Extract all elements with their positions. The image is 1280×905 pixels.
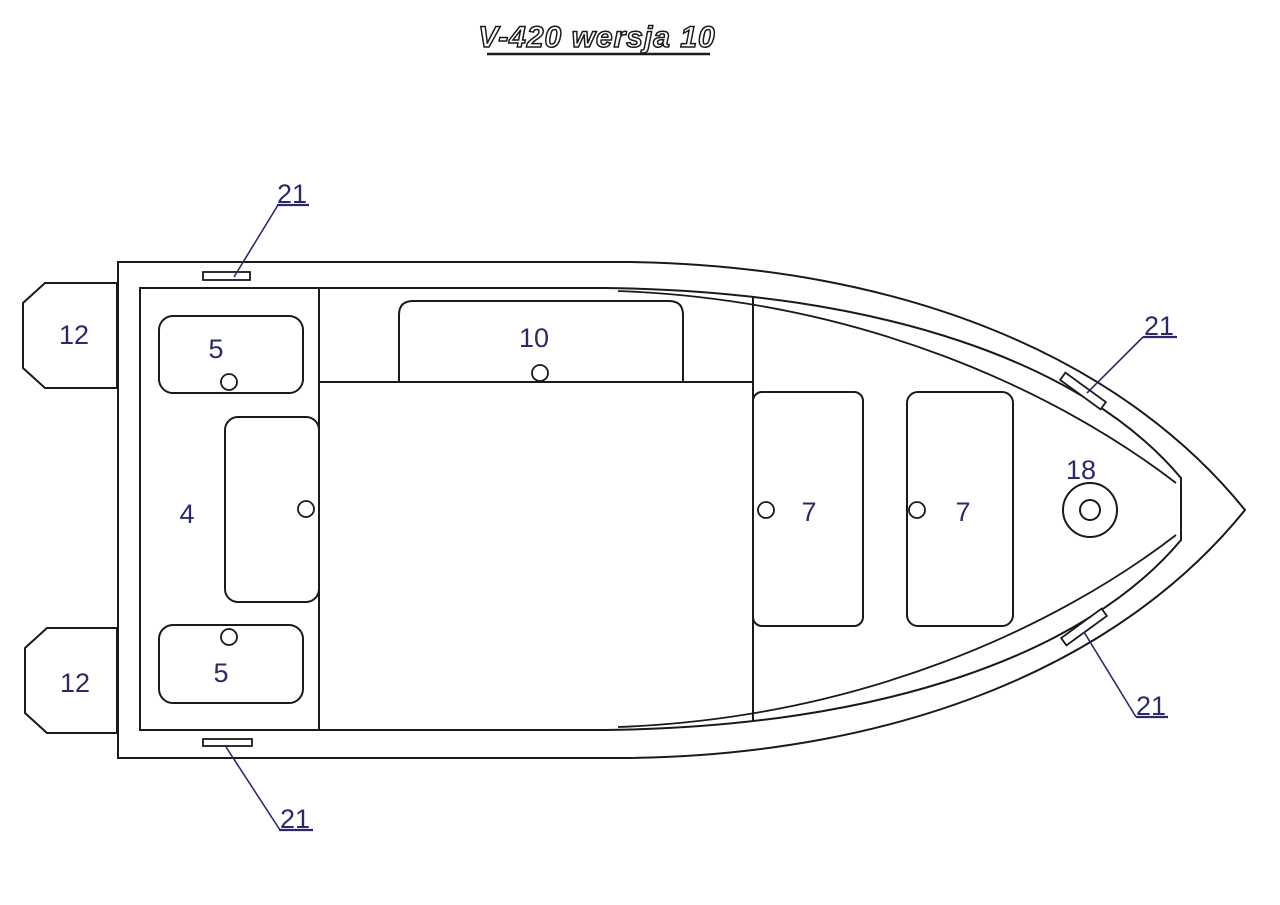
finger-hole-bench7-left [758,502,774,518]
label-10: 10 [519,323,549,353]
label-21-tl: 21 [277,179,307,209]
finger-hole-seat5-bottom [221,629,237,645]
finger-hole-console [298,501,314,517]
finger-hole-seat5-top [221,374,237,390]
finger-hole-bench10 [532,365,548,381]
label-21-br: 21 [1136,691,1166,721]
label-4: 4 [179,499,194,529]
bow-ring-inner [1080,500,1100,520]
cleat-top-left [203,272,250,280]
boat-diagram: V-420 wersja 10 12 12 5 [0,0,1280,905]
drawing-page: V-420 wersja 10 12 12 5 [0,0,1280,905]
leader-cleat-top-right [1087,337,1143,393]
label-5-top: 5 [208,334,223,364]
label-7-right: 7 [955,497,970,527]
label-12-bottom: 12 [60,668,90,698]
label-21-tr: 21 [1144,311,1174,341]
label-5-bottom: 5 [213,658,228,688]
cleat-bottom-left [203,739,252,746]
label-18: 18 [1066,455,1096,485]
leader-cleat-bottom-left [226,747,280,830]
leader-cleat-bottom-right [1084,632,1136,717]
label-7-left: 7 [801,497,816,527]
label-12-top: 12 [59,320,89,350]
finger-hole-bench7-right [909,502,925,518]
label-21-bl: 21 [280,804,310,834]
page-title: V-420 wersja 10 [478,21,715,54]
